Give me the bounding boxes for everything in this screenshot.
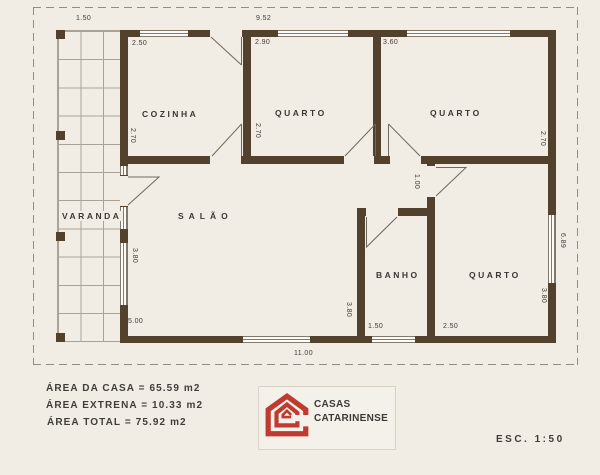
company-logo: CASAS CATARINENSE: [258, 386, 396, 450]
site-boundary-right: [577, 7, 578, 365]
site-boundary-bottom: [33, 364, 578, 365]
door-swing-varanda-salao: [128, 177, 159, 205]
site-boundary-left: [33, 7, 34, 364]
window-quarto1: [278, 30, 348, 37]
window-salao-varanda: [120, 243, 128, 305]
room-label-quarto1: QUARTO: [275, 108, 327, 118]
floor-plan-sheet: COZINHA QUARTO QUARTO VARANDA SALÃO BANH…: [0, 0, 600, 475]
dim-right-side: 6.89: [558, 233, 567, 248]
wall-banho-left: [357, 208, 365, 343]
varanda-post: [56, 131, 65, 140]
door-swing-cozinha-exterior: [211, 37, 242, 65]
wall-quarto1-quarto2: [373, 30, 381, 164]
wall-under-bedrooms: [120, 156, 556, 164]
door-opening-banho: [366, 208, 398, 216]
wall-exterior-bottom: [120, 336, 556, 343]
dim-cozinha-width: 2.50: [132, 39, 147, 48]
dim-salao-depth: 3.80: [130, 248, 139, 263]
logo-text-line2: CATARINENSE: [314, 413, 388, 425]
door-swing-quarto1: [345, 124, 376, 156]
room-label-quarto2: QUARTO: [430, 108, 482, 118]
dim-quarto1-depth: 2.70: [253, 123, 262, 138]
window-salao-bottom: [243, 336, 310, 343]
dim-quarto2-depth: 2.70: [538, 131, 547, 146]
varanda-post: [56, 232, 65, 241]
dim-quarto1-width: 2.90: [255, 38, 270, 47]
area-externa-line: ÁREA EXTRENA = 10.33 m2: [46, 400, 203, 412]
door-swing-banho: [367, 217, 398, 247]
dim-banho-depth: 3.80: [344, 302, 353, 317]
dim-quarto3-depth: 3.80: [539, 288, 548, 303]
door-opening-quarto3: [427, 166, 435, 197]
room-label-varanda: VARANDA: [60, 211, 123, 221]
dim-banho-width: 1.50: [368, 322, 383, 331]
door-opening-quarto1: [344, 156, 374, 164]
dim-cozinha-depth: 2.70: [128, 128, 137, 143]
door-opening-cozinha: [210, 156, 241, 164]
area-total-line: ÁREA TOTAL = 75.92 m2: [47, 417, 187, 429]
dim-salao-width: 5.00: [128, 317, 143, 326]
dim-varanda-width: 1.50: [76, 14, 91, 23]
dim-quarto2-width: 3.60: [383, 38, 398, 47]
door-swing-cozinha: [212, 124, 242, 156]
dim-hall-width: 1.00: [412, 174, 421, 189]
room-label-banho: BANHO: [376, 270, 420, 280]
dim-quarto3-width: 2.50: [443, 322, 458, 331]
varanda-post: [56, 30, 65, 39]
dim-house-top: 9.52: [256, 14, 271, 23]
room-label-quarto3: QUARTO: [469, 270, 521, 280]
logo-text-line1: CASAS: [314, 399, 351, 411]
varanda-tile-grid: [57, 30, 126, 342]
window-quarto2: [407, 30, 510, 37]
door-opening-varanda-salao: [120, 176, 128, 206]
wall-exterior-right: [548, 30, 556, 343]
door-opening-quarto2: [390, 156, 421, 164]
wall-cozinha-quarto1: [243, 30, 251, 164]
window-cozinha: [140, 30, 188, 37]
varanda-post: [56, 333, 65, 342]
casas-catarinense-house-icon: [265, 392, 311, 440]
dim-house-bottom: 11.00: [294, 349, 313, 358]
site-boundary-top: [33, 7, 578, 8]
scale-label: ESC. 1:50: [496, 434, 565, 446]
door-opening-cozinha-exterior: [210, 30, 242, 37]
area-casa-line: ÁREA DA CASA = 65.59 m2: [46, 383, 201, 395]
room-label-cozinha: COZINHA: [142, 109, 198, 119]
room-label-salao: SALÃO: [178, 211, 233, 221]
door-swing-quarto2: [389, 124, 421, 156]
door-swing-quarto3: [436, 168, 466, 197]
window-banho: [372, 336, 415, 343]
window-quarto3: [548, 215, 556, 283]
window-salao-left-small: [120, 166, 128, 175]
